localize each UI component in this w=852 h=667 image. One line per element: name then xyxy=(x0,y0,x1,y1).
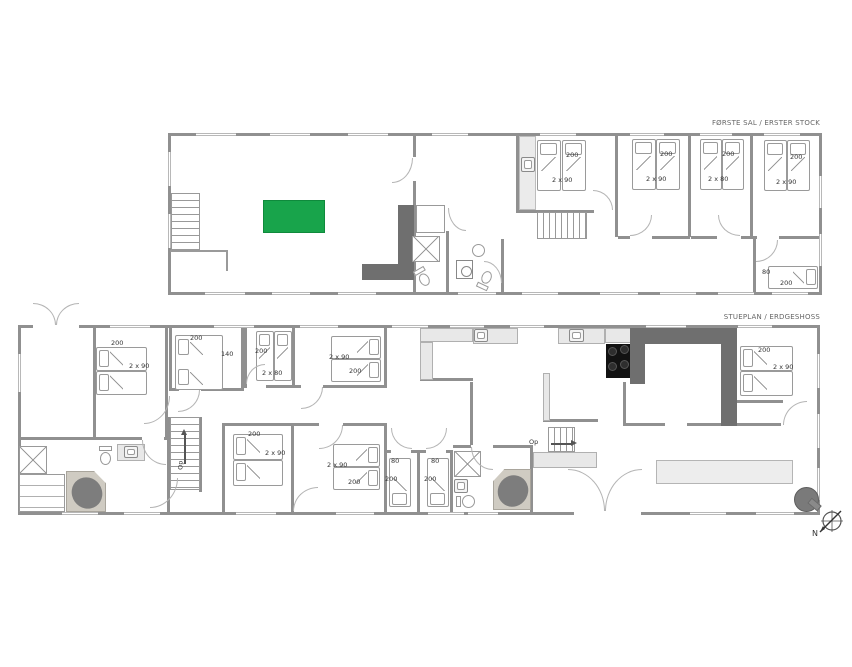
sauna-bench xyxy=(19,474,65,512)
door-arc xyxy=(246,364,265,384)
wall xyxy=(291,423,294,512)
bed-pillow xyxy=(392,493,407,505)
wall xyxy=(615,133,618,237)
bed-pillow xyxy=(743,349,753,367)
bed-size-label: 2 x 90 xyxy=(646,176,666,183)
bed-fold xyxy=(636,156,651,170)
window xyxy=(336,512,374,515)
wall xyxy=(417,453,420,512)
kitchen-counter xyxy=(605,328,633,343)
wall xyxy=(819,133,822,295)
bed-size-label: 2 x 90 xyxy=(773,364,793,371)
counter-dark xyxy=(721,344,737,426)
wall xyxy=(779,236,822,239)
bed-length-label: 200 xyxy=(790,154,802,161)
window xyxy=(458,292,496,295)
window xyxy=(468,512,498,515)
bed-length-label: 200 xyxy=(255,348,267,355)
bed-pillow xyxy=(703,142,718,154)
wall xyxy=(623,382,626,423)
window xyxy=(772,292,808,295)
window xyxy=(817,354,820,388)
window xyxy=(124,512,160,515)
wall xyxy=(18,437,142,440)
bed-pillow xyxy=(259,334,270,346)
bed-fold xyxy=(110,375,123,390)
door-arc xyxy=(56,303,79,325)
bed-size-label: 80 xyxy=(431,458,439,465)
counter-dark xyxy=(630,328,737,344)
door-arc xyxy=(568,469,605,511)
wall xyxy=(450,450,453,515)
window xyxy=(205,292,245,295)
counter-dark xyxy=(630,344,645,384)
window xyxy=(700,133,732,136)
bed-length-label: 200 xyxy=(660,151,672,158)
door-arc xyxy=(756,240,778,262)
bed-size-label: 2 x 90 xyxy=(129,363,149,370)
bed-size-label: 80 xyxy=(391,458,399,465)
bed-size-label: 2 x 90 xyxy=(329,354,349,361)
sink-bowl xyxy=(457,482,465,490)
bed-fold xyxy=(660,156,675,170)
window xyxy=(428,512,464,515)
wall xyxy=(446,231,449,293)
wall xyxy=(470,382,473,445)
counter-dark xyxy=(362,264,414,280)
bed-length-label: 200 xyxy=(566,152,578,159)
bed xyxy=(96,371,147,395)
bed xyxy=(233,460,283,486)
wall xyxy=(343,423,387,426)
washing-machine-door xyxy=(461,266,472,277)
window xyxy=(819,176,822,208)
bed-length-label: 200 xyxy=(758,347,770,354)
bed-pillow xyxy=(369,362,379,378)
kitchen-counter xyxy=(420,342,433,380)
door-arc xyxy=(293,487,318,511)
washing-machine-icon xyxy=(456,260,473,279)
stairs-arrow-head xyxy=(571,440,577,446)
bed-length-label: 200 xyxy=(111,340,123,347)
window xyxy=(522,292,558,295)
cooktop-burner xyxy=(608,362,617,371)
cooktop-burner xyxy=(620,345,629,354)
door-arc xyxy=(718,215,740,236)
wall xyxy=(691,236,717,239)
bed-size-label: 2 x 80 xyxy=(262,370,282,377)
toilet xyxy=(99,446,113,466)
wall xyxy=(294,385,301,388)
wall xyxy=(292,325,295,388)
bed-pillow xyxy=(806,269,816,285)
bed-pillow xyxy=(236,463,246,481)
stairs-arrow xyxy=(184,434,186,464)
wall xyxy=(384,450,391,453)
bed-pillow xyxy=(635,142,652,154)
sink-icon xyxy=(521,157,535,172)
toilet-bowl xyxy=(417,272,432,288)
bed xyxy=(768,266,818,289)
sink-icon xyxy=(124,446,138,458)
toilet-bowl xyxy=(462,495,475,508)
bed-pillow xyxy=(368,447,378,463)
toilet xyxy=(456,494,476,509)
wall xyxy=(222,423,292,426)
window xyxy=(432,133,468,136)
door-arc xyxy=(391,428,412,449)
wardrobe xyxy=(519,136,536,210)
toilet xyxy=(413,265,435,289)
stairs-up-label: Op xyxy=(529,439,538,446)
bed-fold xyxy=(754,375,767,391)
plan-title-floor1: FØRSTE SAL / ERSTER STOCK xyxy=(690,120,820,127)
wall xyxy=(222,426,225,512)
bed-fold xyxy=(793,270,804,285)
bed-fold xyxy=(190,372,203,385)
window xyxy=(270,133,310,136)
bed-length-label: 200 xyxy=(424,476,436,483)
toilet-bowl xyxy=(100,452,111,465)
window xyxy=(168,152,171,186)
bathtub xyxy=(66,471,106,512)
floorplan-canvas: FØRSTE SAL / ERSTER STOCK xyxy=(0,0,852,667)
bed-fold xyxy=(356,448,367,462)
sink-bowl xyxy=(127,449,135,455)
bathtub xyxy=(493,469,531,510)
cabinet xyxy=(416,205,445,233)
cooktop-burner xyxy=(608,347,617,356)
window xyxy=(214,325,254,328)
window xyxy=(817,414,820,448)
wall xyxy=(453,445,471,448)
bed-pillow xyxy=(540,143,557,155)
landing xyxy=(533,452,597,468)
bed-fold xyxy=(726,156,739,170)
toilet-tank xyxy=(99,446,112,451)
bed-size-label: 2 x 90 xyxy=(265,450,285,457)
bed-pillow xyxy=(178,369,189,385)
bed-fold xyxy=(768,157,782,171)
window xyxy=(738,325,772,328)
door-arc xyxy=(783,401,807,425)
window xyxy=(756,512,794,515)
bed-length-label: 200 xyxy=(385,476,397,483)
bed-fold xyxy=(110,351,123,366)
wall xyxy=(169,325,172,389)
sink-icon xyxy=(454,479,468,493)
railing xyxy=(226,250,228,271)
window xyxy=(764,133,800,136)
bed-fold xyxy=(247,438,260,454)
bed-fold xyxy=(247,464,260,480)
wall xyxy=(493,445,533,448)
sink-icon xyxy=(472,244,485,257)
window xyxy=(196,133,236,136)
door-arc xyxy=(301,387,323,409)
stairs-arrow xyxy=(551,443,571,445)
bed-fold xyxy=(566,157,581,171)
bed-pillow xyxy=(99,350,109,367)
door-arc xyxy=(426,428,447,449)
bed-pillow xyxy=(430,493,445,505)
wall xyxy=(501,239,504,293)
railing xyxy=(170,250,228,252)
door-arc xyxy=(593,190,613,210)
window xyxy=(600,292,638,295)
door-arc xyxy=(33,303,56,325)
bed-fold xyxy=(190,342,203,355)
bed-fold xyxy=(277,347,288,359)
sink-icon xyxy=(474,329,488,342)
wall xyxy=(294,423,319,426)
bed-length-label: 200 xyxy=(348,479,360,486)
wall xyxy=(384,325,387,388)
door-arc xyxy=(630,215,652,236)
window xyxy=(819,234,822,266)
window xyxy=(272,292,310,295)
bed-pillow xyxy=(368,470,378,486)
bed-length-label: 200 xyxy=(349,368,361,375)
dining-table xyxy=(656,460,793,484)
window xyxy=(630,133,664,136)
bathtub-basin xyxy=(66,471,109,514)
bed-size-label: 2 x 90 xyxy=(552,177,572,184)
wall xyxy=(623,423,665,426)
bathtub-basin xyxy=(492,470,534,513)
door-arc xyxy=(484,261,502,283)
wall xyxy=(323,385,387,388)
window xyxy=(110,325,150,328)
bed-pillow xyxy=(99,374,109,391)
bed-size-label: 2 x 80 xyxy=(708,176,728,183)
stairs-arrow-head xyxy=(181,429,187,435)
bed-size-label: 80 xyxy=(762,269,770,276)
wall xyxy=(266,385,294,388)
stairs xyxy=(171,193,200,250)
window xyxy=(540,133,576,136)
bed-length-label: 200 xyxy=(722,151,734,158)
door-arc xyxy=(142,440,166,465)
bed-pillow xyxy=(236,437,246,455)
window xyxy=(18,354,21,392)
window xyxy=(660,292,696,295)
bed-pillow xyxy=(277,334,288,346)
door-arc xyxy=(448,208,466,231)
bed-pillow xyxy=(743,374,753,392)
bed-pillow xyxy=(178,339,189,355)
wall xyxy=(543,419,598,422)
kitchen-counter xyxy=(420,328,473,342)
window xyxy=(338,292,376,295)
sink-icon xyxy=(569,329,584,342)
bed xyxy=(740,371,793,396)
bed-pillow xyxy=(767,143,783,155)
wall xyxy=(413,133,416,157)
wall xyxy=(384,423,387,512)
sink-bowl xyxy=(524,160,532,169)
window xyxy=(348,133,388,136)
cooktop xyxy=(606,344,632,378)
door-arc xyxy=(178,390,200,412)
shower xyxy=(19,446,47,474)
bed-length-label: 200 xyxy=(248,431,260,438)
bed-length-label: 200 xyxy=(190,335,202,342)
wall xyxy=(750,133,753,237)
green-table xyxy=(263,200,325,233)
bed-size-label: 2 x 90 xyxy=(776,179,796,186)
wall xyxy=(652,236,690,239)
bed-fold xyxy=(704,156,717,170)
shower xyxy=(412,236,440,262)
bed-pillow xyxy=(369,339,379,355)
bed-length-label: 200 xyxy=(780,280,792,287)
half-wall xyxy=(543,373,550,421)
door-arc xyxy=(150,478,178,508)
cooktop-burner xyxy=(620,360,629,369)
sink-bowl xyxy=(572,332,581,339)
bed-fold xyxy=(541,157,556,171)
bed-size-label: 2 x 90 xyxy=(327,462,347,469)
window xyxy=(690,512,726,515)
stairs xyxy=(537,212,587,239)
window xyxy=(300,325,338,328)
window xyxy=(236,512,276,515)
window xyxy=(718,292,754,295)
compass-north-label: N xyxy=(812,529,818,538)
door-arc xyxy=(605,469,642,511)
wall xyxy=(618,236,630,239)
door-arc xyxy=(392,158,413,183)
plan-title-floor0: STUEPLAN / ERDGESHOSS xyxy=(690,314,820,321)
wall xyxy=(737,400,783,403)
bed-size-label: 140 xyxy=(221,351,233,358)
compass-icon: N xyxy=(810,505,850,545)
toilet-tank xyxy=(456,496,461,507)
bed xyxy=(175,335,223,390)
stairs-up-label: Op xyxy=(177,461,184,470)
bed-fold xyxy=(357,340,368,354)
sink-bowl xyxy=(477,332,485,339)
window xyxy=(62,512,98,515)
wall xyxy=(688,133,691,237)
